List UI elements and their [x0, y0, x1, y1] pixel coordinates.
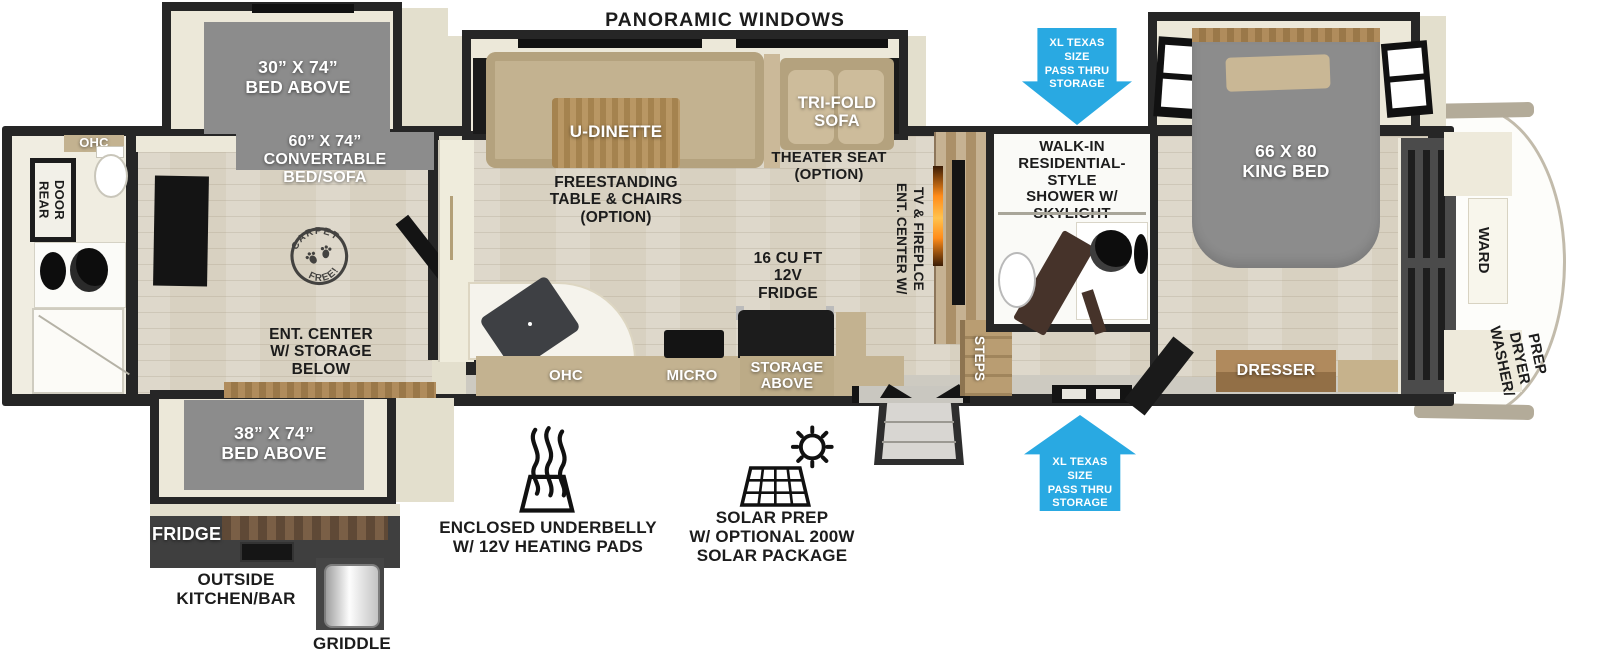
panoramic-window-left	[518, 39, 702, 48]
u-dinette-label: U-DINETTE	[540, 122, 692, 141]
griddle-plate	[324, 564, 380, 628]
pass-thru-top-label: XL TEXAS SIZE PASS THRU STORAGE	[1038, 37, 1116, 92]
bath-bunk-wall	[126, 126, 138, 406]
entry-steps	[882, 403, 956, 459]
entry-door-post-left	[852, 386, 859, 403]
bunk-ent-center-label: ENT. CENTER W/ STORAGE BELOW	[235, 326, 407, 378]
entry-step-line-2	[882, 441, 956, 443]
solar-prep-label: SOLAR PREP W/ OPTIONAL 200W SOLAR PACKAG…	[652, 508, 892, 565]
bunk-lower-bed-label: 38” X 74” BED ABOVE	[186, 424, 362, 463]
tri-fold-sofa-label: TRI-FOLD SOFA	[780, 94, 894, 131]
step-well-tread-1	[1062, 389, 1086, 399]
mid-bath-mirror	[1134, 234, 1148, 274]
panoramic-windows-title: PANORAMIC WINDOWS	[565, 10, 885, 32]
rear-toilet	[94, 154, 128, 198]
dresser-label: DRESSER	[1216, 362, 1336, 380]
solar-prep-icon	[735, 424, 835, 512]
ent-center-tv	[952, 160, 965, 305]
rear-bath-sink	[40, 252, 66, 290]
walk-in-shower-label: WALK-IN RESIDENTIAL-STYLE SHOWER W/ SKYL…	[996, 139, 1148, 223]
steps-label: STEPS	[972, 326, 1006, 392]
panoramic-window-right	[736, 39, 888, 48]
mid-bath-sink	[1090, 230, 1132, 272]
rear-washer-unit	[70, 248, 108, 292]
heating-pad-icon	[505, 424, 589, 518]
rear-door-label: REAR DOOR	[36, 164, 70, 236]
bedroom-window-right	[1381, 40, 1433, 118]
bunk-upper-bed-label: 30” X 74” BED ABOVE	[210, 58, 386, 97]
griddle-label: GRIDDLE	[298, 634, 406, 653]
bunk-slide-roof-vent	[252, 4, 354, 13]
fridge-12v-label: 16 CU FT 12V FRIDGE	[740, 250, 836, 302]
bunk-pantry-handle	[450, 196, 453, 260]
theater-seat-label: THEATER SEAT (OPTION)	[758, 150, 900, 184]
kitchen-sink-faucet-dot	[528, 322, 532, 326]
step-well-tread-2	[1096, 389, 1120, 399]
cap-shelf-upper	[1444, 132, 1512, 196]
ent-center-tv-label: ENT. CENTER W/ TV & FIREPLCE	[892, 158, 932, 320]
outside-kitchen-grill	[240, 542, 294, 562]
king-bed-pillow	[1225, 54, 1330, 92]
rv-floorplan: 30” X 74” BED ABOVE 38” X 74” BED ABOVE …	[0, 0, 1600, 666]
convertible-bed-label: 60” X 74” CONVERTABLE BED/SOFA	[224, 133, 426, 187]
storage-above-label: STORAGE ABOVE	[740, 360, 834, 392]
fridge-12v	[738, 310, 834, 358]
entry-step-line-1	[884, 421, 954, 423]
king-bed-label: 66 X 80 KING BED	[1196, 142, 1376, 181]
underbelly-label: ENCLOSED UNDERBELLY W/ 12V HEATING PADS	[428, 518, 668, 556]
kitchen-micro-label: MICRO	[646, 368, 738, 385]
bunk-top-wall-strip	[136, 136, 236, 152]
outside-kitchen-gap	[150, 504, 400, 516]
outside-kitchen-label: OUTSIDE KITCHEN/BAR	[150, 570, 322, 608]
ward-label: WARD	[1474, 204, 1500, 296]
mid-bath-toilet	[998, 252, 1036, 308]
kitchen-side-cabinet	[836, 312, 866, 394]
fireplace-flame	[933, 166, 943, 266]
bunk-ent-center-cabinet	[224, 382, 436, 398]
lower-slide-3d-wall	[396, 398, 454, 502]
outside-kitchen-bar-top	[222, 516, 388, 540]
shower-curb-line	[998, 212, 1146, 215]
freestanding-table-label: FREESTANDING TABLE & CHAIRS (OPTION)	[538, 174, 694, 226]
pass-thru-bottom-label: XL TEXAS SIZE PASS THRU STORAGE	[1041, 456, 1119, 511]
outside-fridge-label: FRIDGE	[152, 524, 224, 544]
microwave	[664, 330, 724, 358]
bunk-tv-left	[153, 176, 209, 287]
kitchen-ohc-label: OHC	[520, 368, 612, 385]
bunk-slide-3d-wall	[402, 8, 448, 126]
paw-print-icon	[303, 243, 336, 268]
